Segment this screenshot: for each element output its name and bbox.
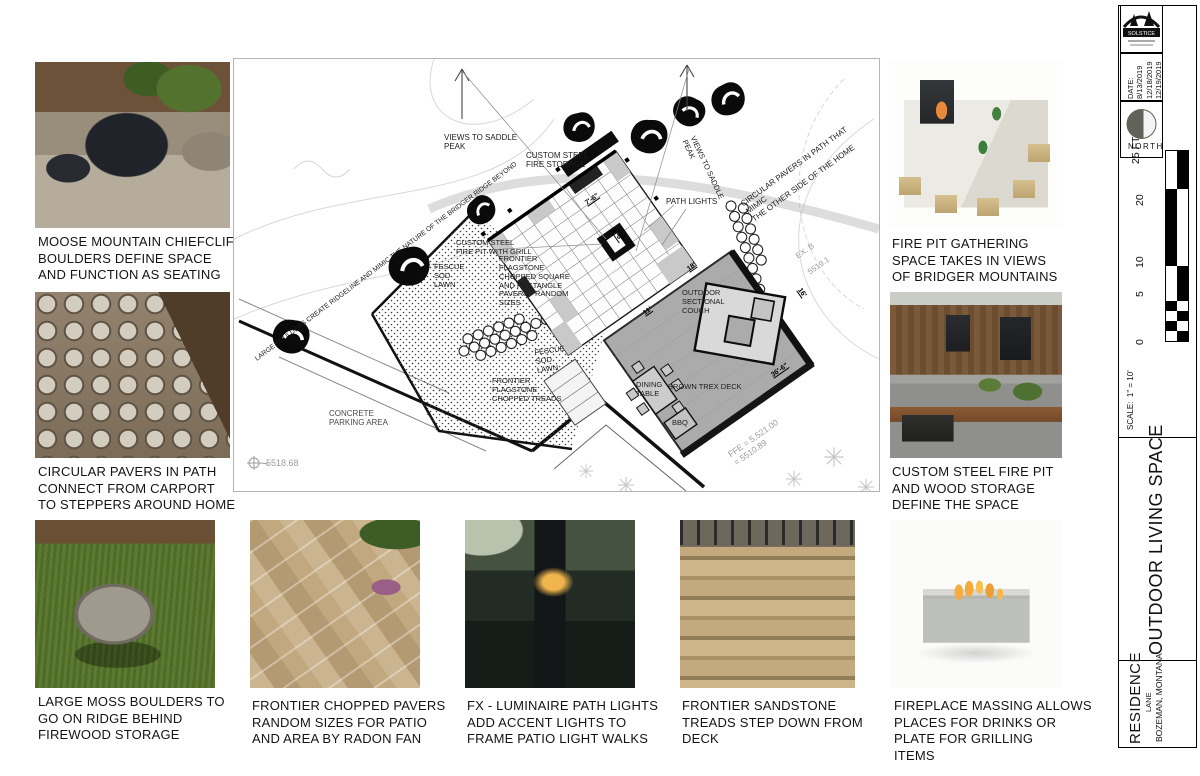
plan-note-path-lights: PATH LIGHTS xyxy=(666,197,717,206)
caption-circular-pavers: CIRCULAR PAVERS IN PATH CONNECT FROM CAR… xyxy=(38,464,235,514)
plan-note-parking: CONCRETE PARKING AREA xyxy=(329,409,388,428)
caption-moose-mountain-boulders: MOOSE MOUNTAIN CHIEFCLIFF BOULDERS DEFIN… xyxy=(38,234,242,284)
plan-note-treads: FRONTIER FLAGSTONE CHOPPED TREADS xyxy=(492,377,561,404)
scale-tick-0: 0 xyxy=(1134,339,1146,345)
scale-note: SCALE: 1" = 10' xyxy=(1126,370,1135,430)
caption-moss-boulders: LARGE MOSS BOULDERS TO GO ON RIDGE BEHIN… xyxy=(38,694,225,744)
photo-fireplace-massing xyxy=(890,520,1062,688)
photo-circular-pavers xyxy=(35,292,230,458)
photo-path-light xyxy=(465,520,635,688)
plan-note-bbq: BBQ xyxy=(672,419,688,428)
svg-text:SOLSTICE: SOLSTICE xyxy=(1128,31,1156,37)
plan-note-dining: DINING TABLE xyxy=(636,381,662,399)
scale-tick-10: 10 xyxy=(1134,256,1146,268)
plan-note-flagstone: FRONTIER FLAGSTONE CHOPPED SQUARE AND RE… xyxy=(499,255,570,308)
logo-cell: SOLSTICE xyxy=(1120,5,1163,53)
caption-path-lights: FX - LUMINAIRE PATH LIGHTS ADD ACCENT LI… xyxy=(467,698,658,748)
caption-fireplace-massing: FIREPLACE MASSING ALLOWS PLACES FOR DRIN… xyxy=(894,698,1092,765)
scale-tick-25: 25 FT xyxy=(1130,137,1142,164)
caption-sandstone-treads: FRONTIER SANDSTONE TREADS STEP DOWN FROM… xyxy=(682,698,863,748)
scale-bar xyxy=(1165,150,1189,342)
plan-note-fescue-1: FESCUE SOD LAWN xyxy=(434,263,464,290)
scale-tick-5: 5 xyxy=(1134,291,1146,297)
project-name: RESIDENCE xyxy=(1127,652,1144,744)
sheet-title: OUTDOOR LIVING SPACE xyxy=(1146,424,1167,655)
photo-moose-mountain-boulders xyxy=(35,62,230,228)
photo-sandstone-treads xyxy=(680,520,855,688)
caption-fire-pit-gathering: FIRE PIT GATHERING SPACE TAKES IN VIEWS … xyxy=(892,236,1058,286)
photo-fire-pit-render xyxy=(890,60,1062,228)
photo-steel-fire-pit-house xyxy=(890,292,1062,458)
plan-note-steel-storage: CUSTOM STEEL FIRE STORAGE xyxy=(526,151,588,170)
project-sub: LANE xyxy=(1144,692,1153,712)
project-location: BOZEMAN, MONTANA xyxy=(1154,653,1164,742)
caption-chopped-pavers: FRONTIER CHOPPED PAVERS RANDOM SIZES FOR… xyxy=(252,698,445,748)
solstice-logo: SOLSTICE xyxy=(1121,6,1162,52)
caption-steel-fire-pit: CUSTOM STEEL FIRE PIT AND WOOD STORAGE D… xyxy=(892,464,1054,514)
plan-note-trex-deck: BROWN TREX DECK xyxy=(668,383,742,392)
scale-tick-20: 20 xyxy=(1134,194,1146,206)
photo-chopped-pavers xyxy=(250,520,420,688)
presentation-board: MOOSE MOUNTAIN CHIEFCLIFF BOULDERS DEFIN… xyxy=(0,0,1200,776)
plan-note-couch: OUTDOOR SECTIONAL COUCH xyxy=(682,289,725,316)
photo-moss-boulder xyxy=(35,520,215,688)
plan-spot-elevation: 5518.68 xyxy=(266,458,299,469)
plan-note-views-saddle-1: VIEWS TO SADDLE PEAK xyxy=(444,133,517,152)
date-text: DATE: 8/13/2019 12/18/2019 12/19/2019 xyxy=(1126,61,1164,99)
site-plan-drawing: VIEWS TO SADDLE PEAK VIEWS TO SADDLE PEA… xyxy=(233,58,880,492)
plan-note-fescue-2: FESCUE SOD LAWN xyxy=(534,345,568,376)
